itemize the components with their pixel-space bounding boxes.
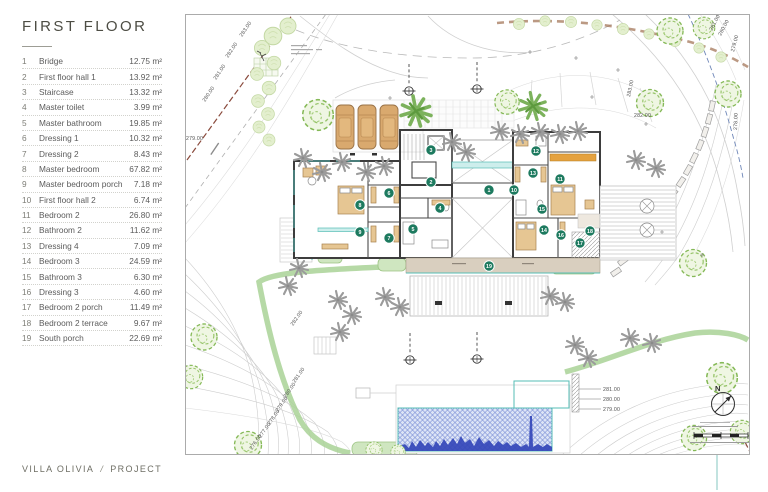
svg-text:16: 16	[558, 233, 564, 239]
svg-text:17: 17	[577, 241, 583, 247]
svg-text:1: 1	[488, 188, 491, 194]
svg-text:3: 3	[430, 148, 433, 154]
room-marker-13: 13	[528, 168, 538, 178]
room-marker-2: 2	[426, 177, 436, 187]
north-label: N	[715, 384, 720, 393]
svg-text:13: 13	[530, 171, 536, 177]
east-pergola-deck	[600, 186, 676, 260]
car	[336, 105, 354, 149]
room-marker-6: 6	[384, 188, 394, 198]
wardrobe	[550, 154, 596, 161]
svg-text:11: 11	[557, 177, 563, 183]
svg-text:15: 15	[539, 207, 545, 213]
elevation-label: 280.00	[603, 397, 620, 403]
svg-text:7: 7	[388, 236, 391, 242]
svg-text:8: 8	[359, 203, 362, 209]
svg-text:14: 14	[541, 228, 547, 234]
car	[380, 105, 398, 149]
water-feature	[452, 162, 513, 168]
room-marker-11: 11	[555, 174, 565, 184]
elevation-label: 279.00	[603, 407, 620, 413]
south-porch	[406, 258, 600, 273]
svg-text:18: 18	[587, 229, 593, 235]
elevation-label: 279.00	[186, 136, 203, 142]
room-marker-8: 8	[355, 200, 365, 210]
room-marker-3: 3	[426, 145, 436, 155]
room-marker-10: 10	[509, 185, 519, 195]
room-marker-5: 5	[408, 224, 418, 234]
svg-text:9: 9	[359, 230, 362, 236]
pool-steps	[572, 374, 579, 412]
room-marker-4: 4	[435, 203, 445, 213]
svg-text:19: 19	[486, 264, 492, 270]
room-marker-14: 14	[539, 225, 549, 235]
room-marker-1: 1	[484, 185, 494, 195]
svg-text:6: 6	[388, 191, 391, 197]
page: FIRST FLOOR 1 Bridge 12.75 m² 2 First fl…	[0, 0, 768, 492]
room-marker-17: 17	[575, 238, 585, 248]
room-marker-12: 12	[531, 146, 541, 156]
elevation-label: 278.00	[733, 113, 740, 130]
room-marker-9: 9	[355, 227, 365, 237]
elevation-label: 281.00	[603, 387, 620, 393]
room-marker-19: 19	[484, 261, 494, 271]
south-stair	[410, 276, 548, 316]
room-marker-16: 16	[556, 230, 566, 240]
room-marker-15: 15	[537, 204, 547, 214]
garden-stair	[314, 337, 336, 354]
elevation-label: 282.00	[634, 113, 651, 119]
svg-text:4: 4	[439, 206, 442, 212]
svg-text:2: 2	[430, 180, 433, 186]
car	[358, 105, 376, 149]
room-marker-18: 18	[585, 226, 595, 236]
room-marker-7: 7	[384, 233, 394, 243]
svg-text:12: 12	[533, 149, 539, 155]
site-plan: 283.00282.00281.00280.00279.00283.00282.…	[0, 0, 768, 492]
svg-text:5: 5	[412, 227, 415, 233]
svg-text:10: 10	[511, 188, 517, 194]
